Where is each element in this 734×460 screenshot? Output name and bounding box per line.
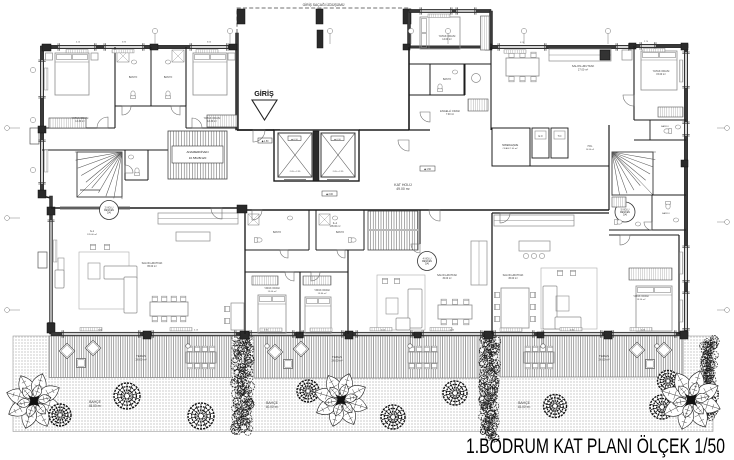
svg-text:GİRİŞ SAÇAĞI İZDÜŞÜMÜ: GİRİŞ SAÇAĞI İZDÜŞÜMÜ bbox=[303, 2, 345, 7]
svg-text:YATAK ODASI: YATAK ODASI bbox=[264, 287, 280, 290]
svg-text:BANYO: BANYO bbox=[164, 76, 173, 79]
svg-text:BANYO: BANYO bbox=[443, 78, 451, 81]
svg-text:15.00 m²: 15.00 m² bbox=[268, 290, 277, 293]
svg-text:45.00 m²: 45.00 m² bbox=[518, 405, 531, 409]
svg-text:45.00 m²: 45.00 m² bbox=[508, 277, 518, 280]
svg-text:SALON+MUTFAK: SALON+MUTFAK bbox=[437, 274, 457, 277]
svg-text:2.05 x 2.35: 2.05 x 2.35 bbox=[290, 171, 302, 173]
svg-text:135.00 m²: 135.00 m² bbox=[87, 233, 97, 236]
svg-text:GİRİŞ: GİRİŞ bbox=[254, 89, 274, 98]
svg-text:HOL: HOL bbox=[588, 146, 593, 148]
svg-text:13.50 m²: 13.50 m² bbox=[637, 298, 646, 301]
svg-text:BANYO: BANYO bbox=[661, 125, 669, 128]
svg-text:45.00 m²: 45.00 m² bbox=[89, 404, 102, 408]
svg-text:ODASI 7.00 m²: ODASI 7.00 m² bbox=[503, 147, 518, 150]
svg-text:◆ 0.10: ◆ 0.10 bbox=[291, 138, 298, 141]
svg-text:26.00 m²: 26.00 m² bbox=[331, 359, 342, 363]
svg-text:BANYO: BANYO bbox=[273, 231, 281, 234]
svg-text:◆ 1.50: ◆ 1.50 bbox=[424, 168, 432, 171]
svg-text:40.00 m²: 40.00 m² bbox=[266, 405, 279, 409]
svg-text:10.50 m²: 10.50 m² bbox=[586, 148, 595, 151]
svg-text:49.00 m²: 49.00 m² bbox=[396, 187, 410, 191]
svg-text:DAİ: DAİ bbox=[623, 214, 627, 217]
svg-text:15.00 m²: 15.00 m² bbox=[656, 73, 666, 76]
svg-text:BANYO: BANYO bbox=[129, 76, 138, 79]
svg-text:13.30 m²: 13.30 m² bbox=[75, 120, 85, 123]
svg-text:13.30 m²: 13.30 m² bbox=[207, 120, 217, 123]
svg-text:YATAK ODASI: YATAK ODASI bbox=[314, 289, 330, 292]
svg-text:DAİ: DAİ bbox=[107, 212, 111, 215]
svg-text:T.O: T.O bbox=[558, 135, 562, 138]
svg-text:◆ 1.50: ◆ 1.50 bbox=[262, 140, 270, 143]
svg-text:3+1: 3+1 bbox=[90, 230, 95, 233]
svg-text:1.BODRUM KAT PLANI ÖLÇEK 1/50: 1.BODRUM KAT PLANI ÖLÇEK 1/50 bbox=[466, 434, 725, 458]
svg-text:BANYO: BANYO bbox=[662, 212, 670, 215]
svg-text:HABERLEŞME: HABERLEŞME bbox=[502, 144, 519, 147]
svg-text:26.00 m²: 26.00 m² bbox=[135, 358, 146, 362]
svg-text:E.O: E.O bbox=[538, 135, 542, 138]
svg-text:7.00 m²: 7.00 m² bbox=[446, 113, 454, 116]
svg-text:YATAK ODASI: YATAK ODASI bbox=[633, 295, 649, 298]
svg-text:◆ 0.10: ◆ 0.10 bbox=[334, 138, 341, 141]
svg-text:26.00 m²: 26.00 m² bbox=[598, 358, 609, 362]
svg-text:DAİ: DAİ bbox=[425, 263, 429, 266]
svg-text:16.58/28/120: 16.58/28/120 bbox=[189, 156, 207, 160]
svg-text:◆ 2.00: ◆ 2.00 bbox=[326, 193, 334, 196]
svg-text:2.05 x 2.35: 2.05 x 2.35 bbox=[333, 171, 345, 173]
svg-text:27.00 m²: 27.00 m² bbox=[578, 67, 588, 71]
svg-text:30.00 m²: 30.00 m² bbox=[442, 277, 451, 280]
svg-text:ANAMERDİVEN: ANAMERDİVEN bbox=[186, 149, 208, 154]
svg-text:135.00 m²: 135.00 m² bbox=[330, 225, 341, 228]
svg-text:14.00 m²: 14.00 m² bbox=[442, 38, 452, 41]
svg-text:BANYO: BANYO bbox=[336, 231, 344, 234]
svg-text:13.80 m²: 13.80 m² bbox=[318, 292, 327, 295]
svg-text:SALON+MUTFAK: SALON+MUTFAK bbox=[572, 64, 595, 68]
svg-text:95.00 m²: 95.00 m² bbox=[147, 265, 157, 268]
